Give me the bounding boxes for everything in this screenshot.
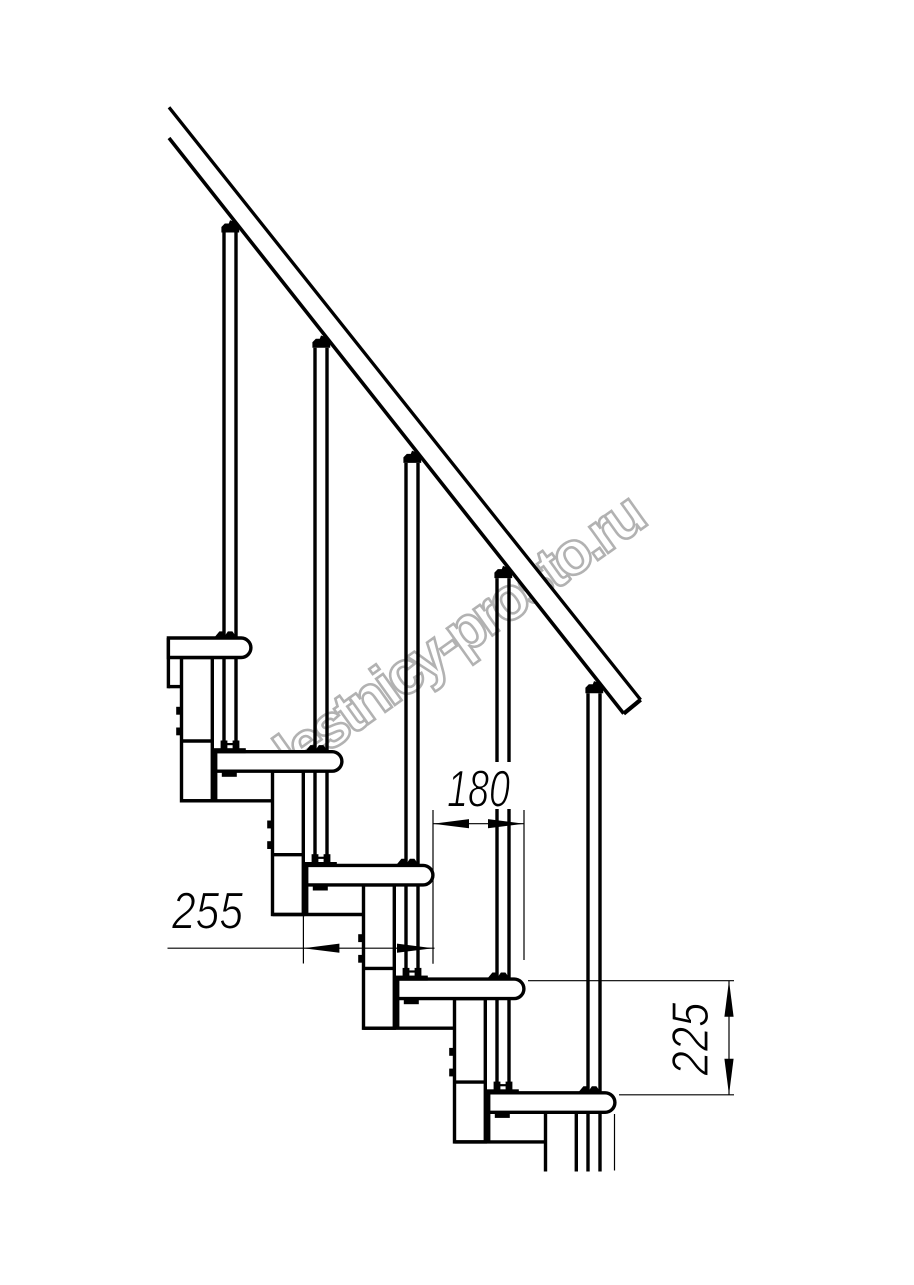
svg-text:225: 225: [662, 1002, 720, 1077]
svg-text:180: 180: [447, 760, 510, 818]
svg-text:255: 255: [171, 883, 244, 941]
